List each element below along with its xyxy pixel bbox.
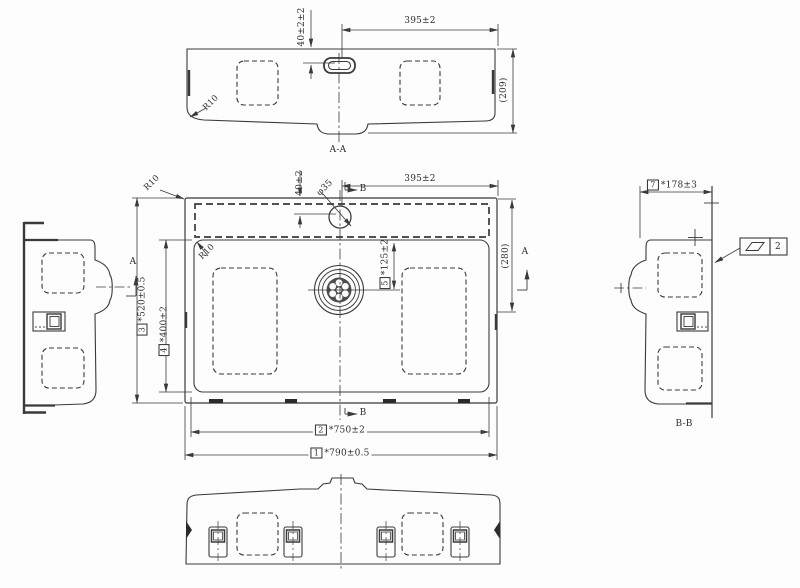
dim-aa-hole-offset: 40±2±2 (297, 7, 307, 46)
dim-tag-7: 7 (647, 180, 659, 191)
dim-bb-depth: 7 *178±3 (645, 180, 699, 191)
bottom-outline (186, 478, 500, 564)
dim-plan-bowl-width-value: *750±2 (329, 425, 365, 435)
dim-tag-5: 5 (380, 277, 391, 289)
plan-pad-left (213, 268, 277, 374)
dim-plan-bowl-depth-value: *400±2 (159, 306, 169, 342)
section-aa-label: A-A (330, 145, 347, 155)
section-mark-a-right: A (522, 247, 529, 257)
flatness-parallelogram-icon (746, 243, 764, 251)
dim-plan-drain-offset-value: *125±2 (380, 239, 390, 275)
dim-tag-1: 1 (310, 448, 322, 459)
dim-plan-back-depth: (280) (501, 243, 511, 268)
section-mark-a-left: A (130, 257, 137, 267)
dim-plan-overall-width-value: *790±0.5 (324, 448, 369, 458)
bb-pad-top (658, 253, 702, 297)
bb-overflow-feature (677, 312, 708, 331)
dim-bb-depth-value: *178±3 (661, 180, 697, 190)
view-left-side (24, 222, 132, 414)
dim-plan-hole-offset: 40±2 (295, 170, 305, 196)
dim-plan-bowl-depth: 4 *400±2 (159, 306, 170, 356)
dim-plan-drain-offset: 5 *125±2 (380, 239, 391, 289)
plan-bowl (194, 240, 489, 392)
dim-plan-hole-span: 395±2 (404, 174, 435, 184)
bottom-pad-left (237, 513, 278, 555)
engineering-drawing-canvas: 40±2±2 395±2 (209) R10 A-A 40±2 φ35 B 39… (0, 0, 800, 588)
plan-pad-right (402, 268, 466, 374)
bb-pad-bottom (658, 347, 702, 390)
dim-plan-overall-depth-value: *520±0.5 (137, 276, 147, 321)
drawing-line-art (0, 0, 800, 588)
left-pad-top (42, 253, 84, 293)
dim-tag-2: 2 (315, 425, 327, 436)
left-overflow-feature (33, 312, 65, 331)
section-mark-b-bottom: B (360, 408, 367, 418)
bottom-brackets (209, 521, 469, 562)
dim-aa-hole-span: 395±2 (404, 16, 435, 26)
left-outline (25, 240, 112, 406)
bottom-pad-right (402, 513, 443, 555)
section-mark-b-top: B (360, 184, 367, 194)
view-plan (126, 170, 527, 460)
dim-tag-4: 4 (159, 344, 170, 356)
dim-tag-3: 3 (137, 324, 148, 336)
dim-aa-height: (209) (499, 77, 509, 102)
gdt-flatness-value: 2 (775, 242, 781, 252)
plan-back-ledge (195, 204, 489, 237)
dim-plan-bowl-width: 2 *750±2 (313, 425, 367, 436)
dim-plan-overall-width: 1 *790±0.5 (308, 448, 371, 459)
left-pad-bottom (42, 348, 84, 388)
view-section-bb (614, 186, 787, 418)
aa-pad-left (237, 61, 278, 105)
view-bottom (186, 474, 500, 570)
dim-plan-overall-depth: 3 *520±0.5 (137, 276, 148, 335)
bb-outline (629, 240, 712, 404)
section-bb-label: B-B (675, 419, 692, 429)
view-section-aa (187, 10, 517, 142)
aa-pad-right (400, 61, 440, 105)
